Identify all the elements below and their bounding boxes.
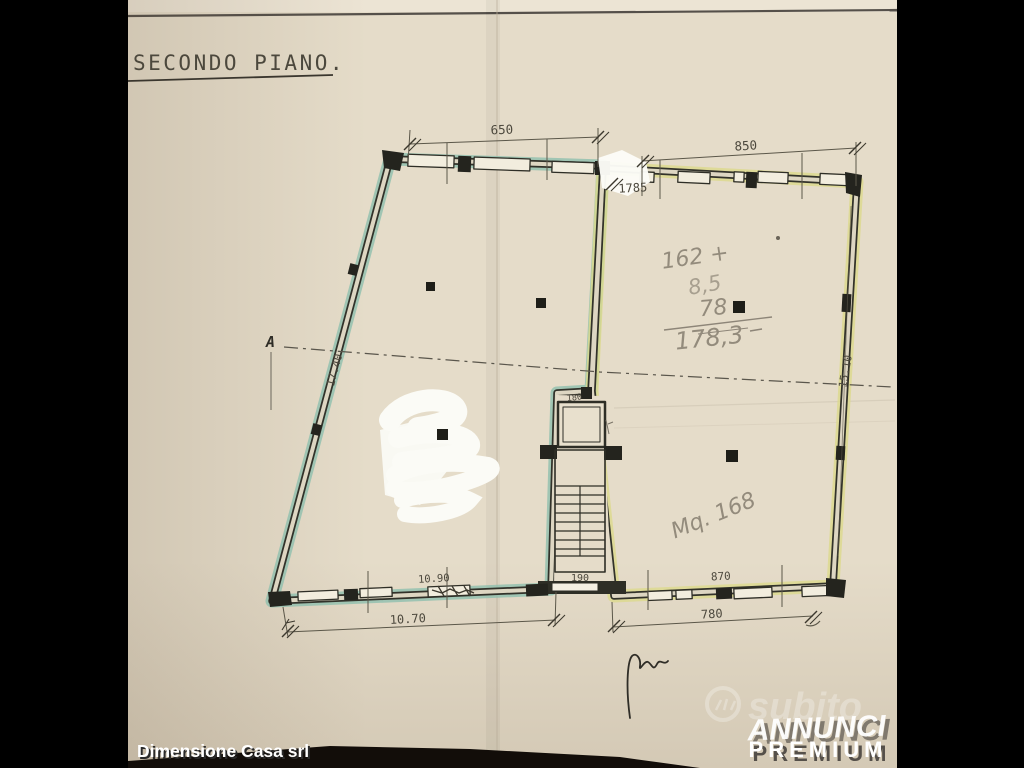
elevator-shaft bbox=[558, 402, 605, 447]
agency-label: Dimensione Casa srl bbox=[137, 741, 309, 761]
dim-label-top-left: 650 bbox=[490, 122, 513, 138]
pencil-addend-3: 78 bbox=[698, 295, 728, 322]
window-opening bbox=[758, 171, 788, 183]
wall-pier bbox=[716, 588, 732, 600]
window-opening bbox=[734, 587, 772, 599]
agency-watermark: Dimensione Casa srl Dimensione Casa srl bbox=[137, 741, 311, 763]
pencil-dot bbox=[776, 236, 780, 240]
window-opening bbox=[648, 590, 672, 600]
dim-label-bottom-outer-right: 780 bbox=[701, 606, 723, 621]
annunci-premium-watermark: ANNUNCI ANNUNCI PREMIUM PREMIUM bbox=[746, 710, 891, 766]
column-marker bbox=[726, 450, 738, 462]
wall-pier bbox=[842, 294, 852, 312]
wall-pier bbox=[836, 446, 846, 460]
dim-label-top-right: 850 bbox=[734, 137, 757, 153]
dim-label-stair-width: 190 bbox=[571, 573, 589, 584]
wall-pier bbox=[826, 578, 846, 598]
dim-label-bottom-inner-left: 10.90 bbox=[418, 572, 450, 586]
window-opening bbox=[820, 173, 847, 185]
wall-pier bbox=[581, 387, 592, 399]
column-marker bbox=[426, 282, 435, 291]
column-marker bbox=[733, 301, 745, 313]
window-opening bbox=[474, 157, 530, 171]
window-opening bbox=[734, 172, 744, 182]
window-opening bbox=[360, 587, 392, 597]
premium-label: PREMIUM bbox=[749, 737, 888, 762]
window-opening bbox=[298, 590, 338, 601]
window-opening bbox=[678, 171, 710, 183]
window-opening bbox=[552, 161, 594, 173]
floor-plan-photo: SECONDO PIANO. 180 bbox=[0, 0, 1024, 768]
photo-frame: SECONDO PIANO. 180 bbox=[0, 0, 1024, 768]
dim-label-bottom-inner-right: 870 bbox=[711, 569, 732, 583]
wall-pier bbox=[458, 156, 472, 172]
wall-pier bbox=[344, 589, 358, 601]
plan-title: SECONDO PIANO. bbox=[133, 51, 345, 75]
elevator-width-label: 180 bbox=[566, 392, 582, 404]
column-marker bbox=[437, 429, 448, 440]
wall-pier bbox=[526, 584, 549, 597]
window-opening bbox=[676, 590, 692, 600]
paper-sheet bbox=[128, 0, 897, 768]
dim-label-bottom-outer-left: 10.70 bbox=[389, 611, 426, 627]
wall-pier bbox=[268, 591, 292, 607]
wall-pier bbox=[845, 172, 862, 197]
section-marker-label: A bbox=[265, 333, 275, 351]
wall-pier bbox=[746, 172, 758, 188]
wall-pier bbox=[604, 446, 622, 460]
window-opening bbox=[552, 583, 598, 591]
column-marker bbox=[536, 298, 546, 308]
dim-label-top-inner: 1785 bbox=[618, 180, 648, 195]
